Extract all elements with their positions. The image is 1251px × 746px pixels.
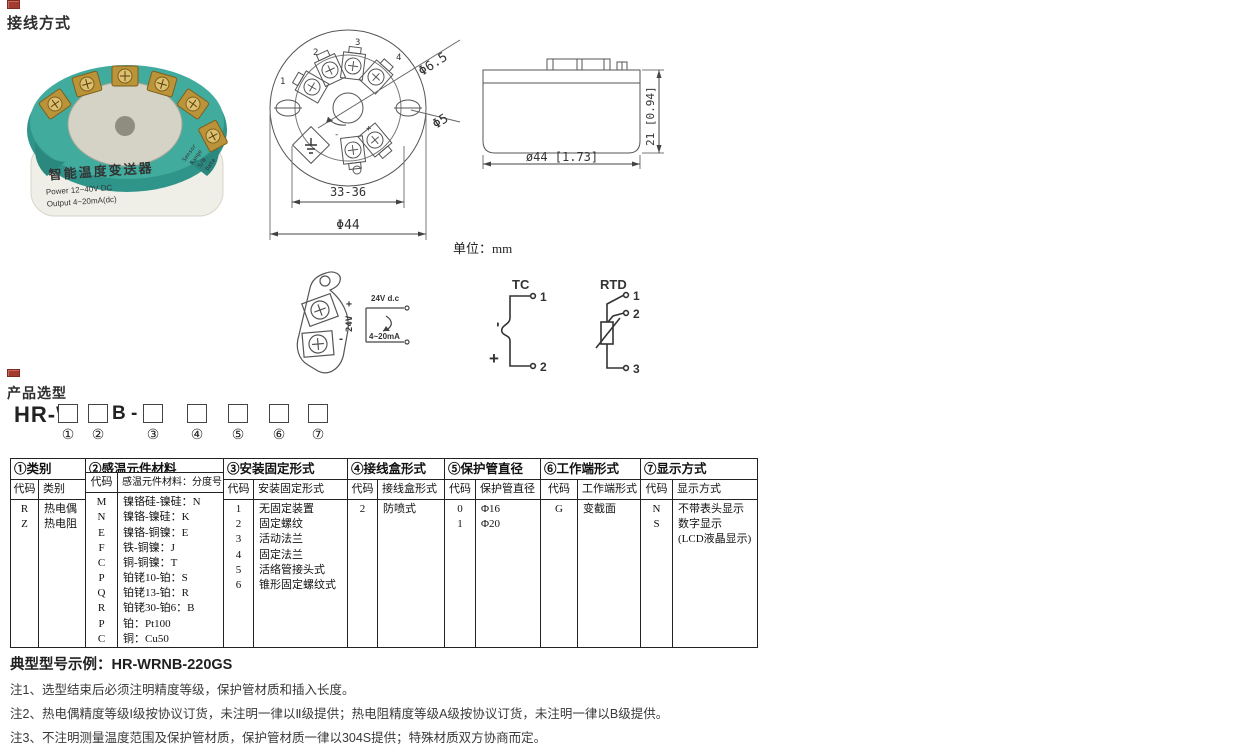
code-cell: P (86, 571, 117, 586)
loop-circuit-diagram: 24V d.c 4~20mA (364, 290, 416, 354)
code-cell: G (541, 502, 577, 517)
section-bullet-icon (7, 369, 20, 377)
tc-diagram: TC - + 1 2 (486, 274, 552, 378)
supply-label: 24V d.c (371, 294, 400, 303)
table-group-display-mode: ⑦显示方式 代码 N S 显示方式 不带表头显示 数字显示 (LCD液晶显示) (640, 459, 757, 647)
code-cell: 4 (224, 548, 253, 563)
position-number-6: ⑥ (269, 427, 289, 444)
model-fixed-segment: B - (112, 403, 137, 425)
code-cell: M (86, 495, 117, 510)
power-terminal-drawing: + 24V - (292, 270, 364, 382)
rtd-terminal-1: 1 (633, 289, 640, 303)
value-cell: 锥形固定螺纹式 (254, 578, 347, 593)
group-header: ⑥工作端形式 (541, 459, 640, 480)
code-cell: Z (11, 517, 38, 532)
clip-minus-label: - (338, 334, 344, 345)
clip-plus-label: + (346, 299, 352, 310)
tc-terminal-2: 2 (540, 360, 547, 374)
table-group-mounting: ③安装固定形式 代码 1 2 3 4 5 6 安装固定形式 无固定装置 固定螺纹 (223, 459, 347, 647)
code-cell: R (11, 502, 38, 517)
position-number-4: ④ (187, 427, 207, 444)
dim-hole-5: Φ5 (430, 111, 451, 132)
dim-height-21: 21 [0.94] (644, 86, 657, 146)
group-header: ③安装固定形式 (224, 459, 347, 480)
value-cell: 镍铬-镍硅：K (118, 510, 223, 525)
code-cell: N (641, 502, 672, 517)
model-box-7 (308, 404, 328, 423)
rtd-terminal-3: 3 (633, 362, 640, 376)
table-group-element-material: ②感温元件材料 代码 M N E F C P Q R P C 感温元件材料：分度 (85, 459, 223, 647)
rtd-diagram: RTD 1 2 3 (594, 274, 652, 384)
value-cell: 固定法兰 (254, 548, 347, 563)
dim-phi-44: Φ44 (336, 218, 360, 233)
group-header: ④接线盒形式 (348, 459, 444, 480)
product-photo: 智能温度变送器 Power 12~40V DC Output 4~20mA(dc… (15, 46, 237, 224)
value-cell: 热电阻 (39, 517, 85, 532)
code-cell: 5 (224, 563, 253, 578)
value-cell: 不带表头显示 (673, 502, 757, 517)
section-bullet-icon (7, 0, 20, 9)
code-cell: 1 (224, 502, 253, 517)
side-view-drawing: 21 [0.94] ø44 [1.73] (478, 56, 678, 174)
position-number-1: ① (58, 427, 78, 444)
model-box-2 (88, 404, 108, 423)
code-cell: 2 (348, 502, 377, 517)
polarity-minus-mark: - (334, 130, 339, 140)
dim-hole-6-5: Φ6.5 (416, 50, 450, 80)
value-cell: 镍铬-铜镍：E (118, 526, 223, 541)
table-group-working-end: ⑥工作端形式 代码 G 工作端形式 变截面 (540, 459, 640, 647)
value-cell: 变截面 (578, 502, 640, 517)
value-cell: 数字显示 (673, 517, 757, 532)
code-cell: N (86, 510, 117, 525)
value-cell: Φ20 (476, 517, 540, 532)
code-cell: S (641, 517, 672, 532)
value-cell: 固定螺纹 (254, 517, 347, 532)
note-1: 注1、选型结束后必须注明精度等级，保护管材质和插入长度。 (10, 679, 354, 698)
selection-table: ①类别 代码 R Z 类别 热电偶 热电阻 ②感温元件材料 代码 (10, 458, 758, 648)
polarity-plus-mark: + (366, 124, 372, 134)
model-box-3 (143, 404, 163, 423)
value-cell: 热电偶 (39, 502, 85, 517)
tc-title: TC (512, 277, 530, 292)
position-number-3: ③ (143, 427, 163, 444)
position-number-5: ⑤ (228, 427, 248, 444)
top-view-drawing: 1 2 3 4 + - Φ6.5 Φ5 33-36 Φ44 (266, 24, 480, 260)
terminal-number-1: 1 (280, 77, 285, 87)
value-cell: 铜-铜镍：T (118, 556, 223, 571)
value-cell: 活动法兰 (254, 532, 347, 547)
model-box-1 (58, 404, 78, 423)
group-header: ①类别 (11, 459, 85, 480)
value-cell: 无固定装置 (254, 502, 347, 517)
ground-pad (293, 127, 330, 164)
code-cell: F (86, 541, 117, 556)
dim-33-36: 33-36 (330, 185, 366, 199)
value-cell: (LCD液晶显示) (673, 532, 757, 547)
dim-width-44: ø44 [1.73] (526, 150, 598, 164)
tc-terminal-1: 1 (540, 290, 547, 304)
wiring-section-title: 接线方式 (7, 12, 71, 33)
value-cell: Φ16 (476, 502, 540, 517)
value-cell: 铂铑10-铂：S (118, 571, 223, 586)
value-cell: 镍铬硅-镍硅：N (118, 495, 223, 510)
group-header: ⑦显示方式 (641, 459, 757, 480)
tc-negative-mark: - (490, 322, 507, 327)
value-cell: 活络管接头式 (254, 563, 347, 578)
unit-label: 单位：mm (453, 238, 512, 257)
model-number-builder: HR-W B - ① ② ③ ④ ⑤ ⑥ ⑦ (0, 400, 400, 446)
code-cell: Q (86, 586, 117, 601)
table-group-junction-box: ④接线盒形式 代码 2 接线盒形式 防喷式 (347, 459, 444, 647)
screw-terminal (290, 46, 397, 170)
terminal-number-2: 2 (313, 48, 318, 58)
group-header: ②感温元件材料 (86, 459, 223, 473)
table-group-tube-diameter: ⑤保护管直径 代码 0 1 保护管直径 Φ16 Φ20 (444, 459, 540, 647)
terminal-number-4: 4 (396, 53, 401, 63)
code-cell: 6 (224, 578, 253, 593)
code-cell: 3 (224, 532, 253, 547)
model-box-6 (269, 404, 289, 423)
code-cell: 2 (224, 517, 253, 532)
note-3: 注3、不注明测量温度范围及保护管材质，保护管材质一律以304S提供；特殊材质双方… (10, 727, 546, 746)
code-cell: C (86, 632, 117, 647)
model-box-4 (187, 404, 207, 423)
code-cell: R (86, 601, 117, 616)
current-label: 4~20mA (369, 332, 400, 341)
tc-positive-mark: + (489, 349, 499, 368)
value-cell: 铜：Cu50 (118, 632, 223, 647)
clip-volts-label: 24V (345, 315, 355, 332)
position-number-7: ⑦ (308, 427, 328, 444)
value-cell: 防喷式 (378, 502, 444, 517)
code-cell: E (86, 526, 117, 541)
terminal-number-3: 3 (355, 38, 360, 48)
code-cell: 1 (445, 517, 475, 532)
code-cell: C (86, 556, 117, 571)
position-number-2: ② (88, 427, 108, 444)
model-box-5 (228, 404, 248, 423)
value-cell: 铁-铜镍：J (118, 541, 223, 556)
code-cell: 0 (445, 502, 475, 517)
code-cell: P (86, 617, 117, 632)
value-cell: 铂铑30-铂6：B (118, 601, 223, 616)
rtd-title: RTD (600, 277, 627, 292)
value-cell: 铂铑13-铂：R (118, 586, 223, 601)
code-cell (641, 532, 672, 547)
typical-model-example: 典型型号示例：HR-WRNB-220GS (10, 653, 232, 674)
group-header: ⑤保护管直径 (445, 459, 540, 480)
value-cell: 铂：Pt100 (118, 617, 223, 632)
note-2: 注2、热电偶精度等级I级按协议订货，未注明一律以Ⅱ级提供；热电阻精度等级A级按协… (10, 703, 668, 722)
rtd-terminal-2: 2 (633, 307, 640, 321)
table-group-category: ①类别 代码 R Z 类别 热电偶 热电阻 (11, 459, 85, 647)
